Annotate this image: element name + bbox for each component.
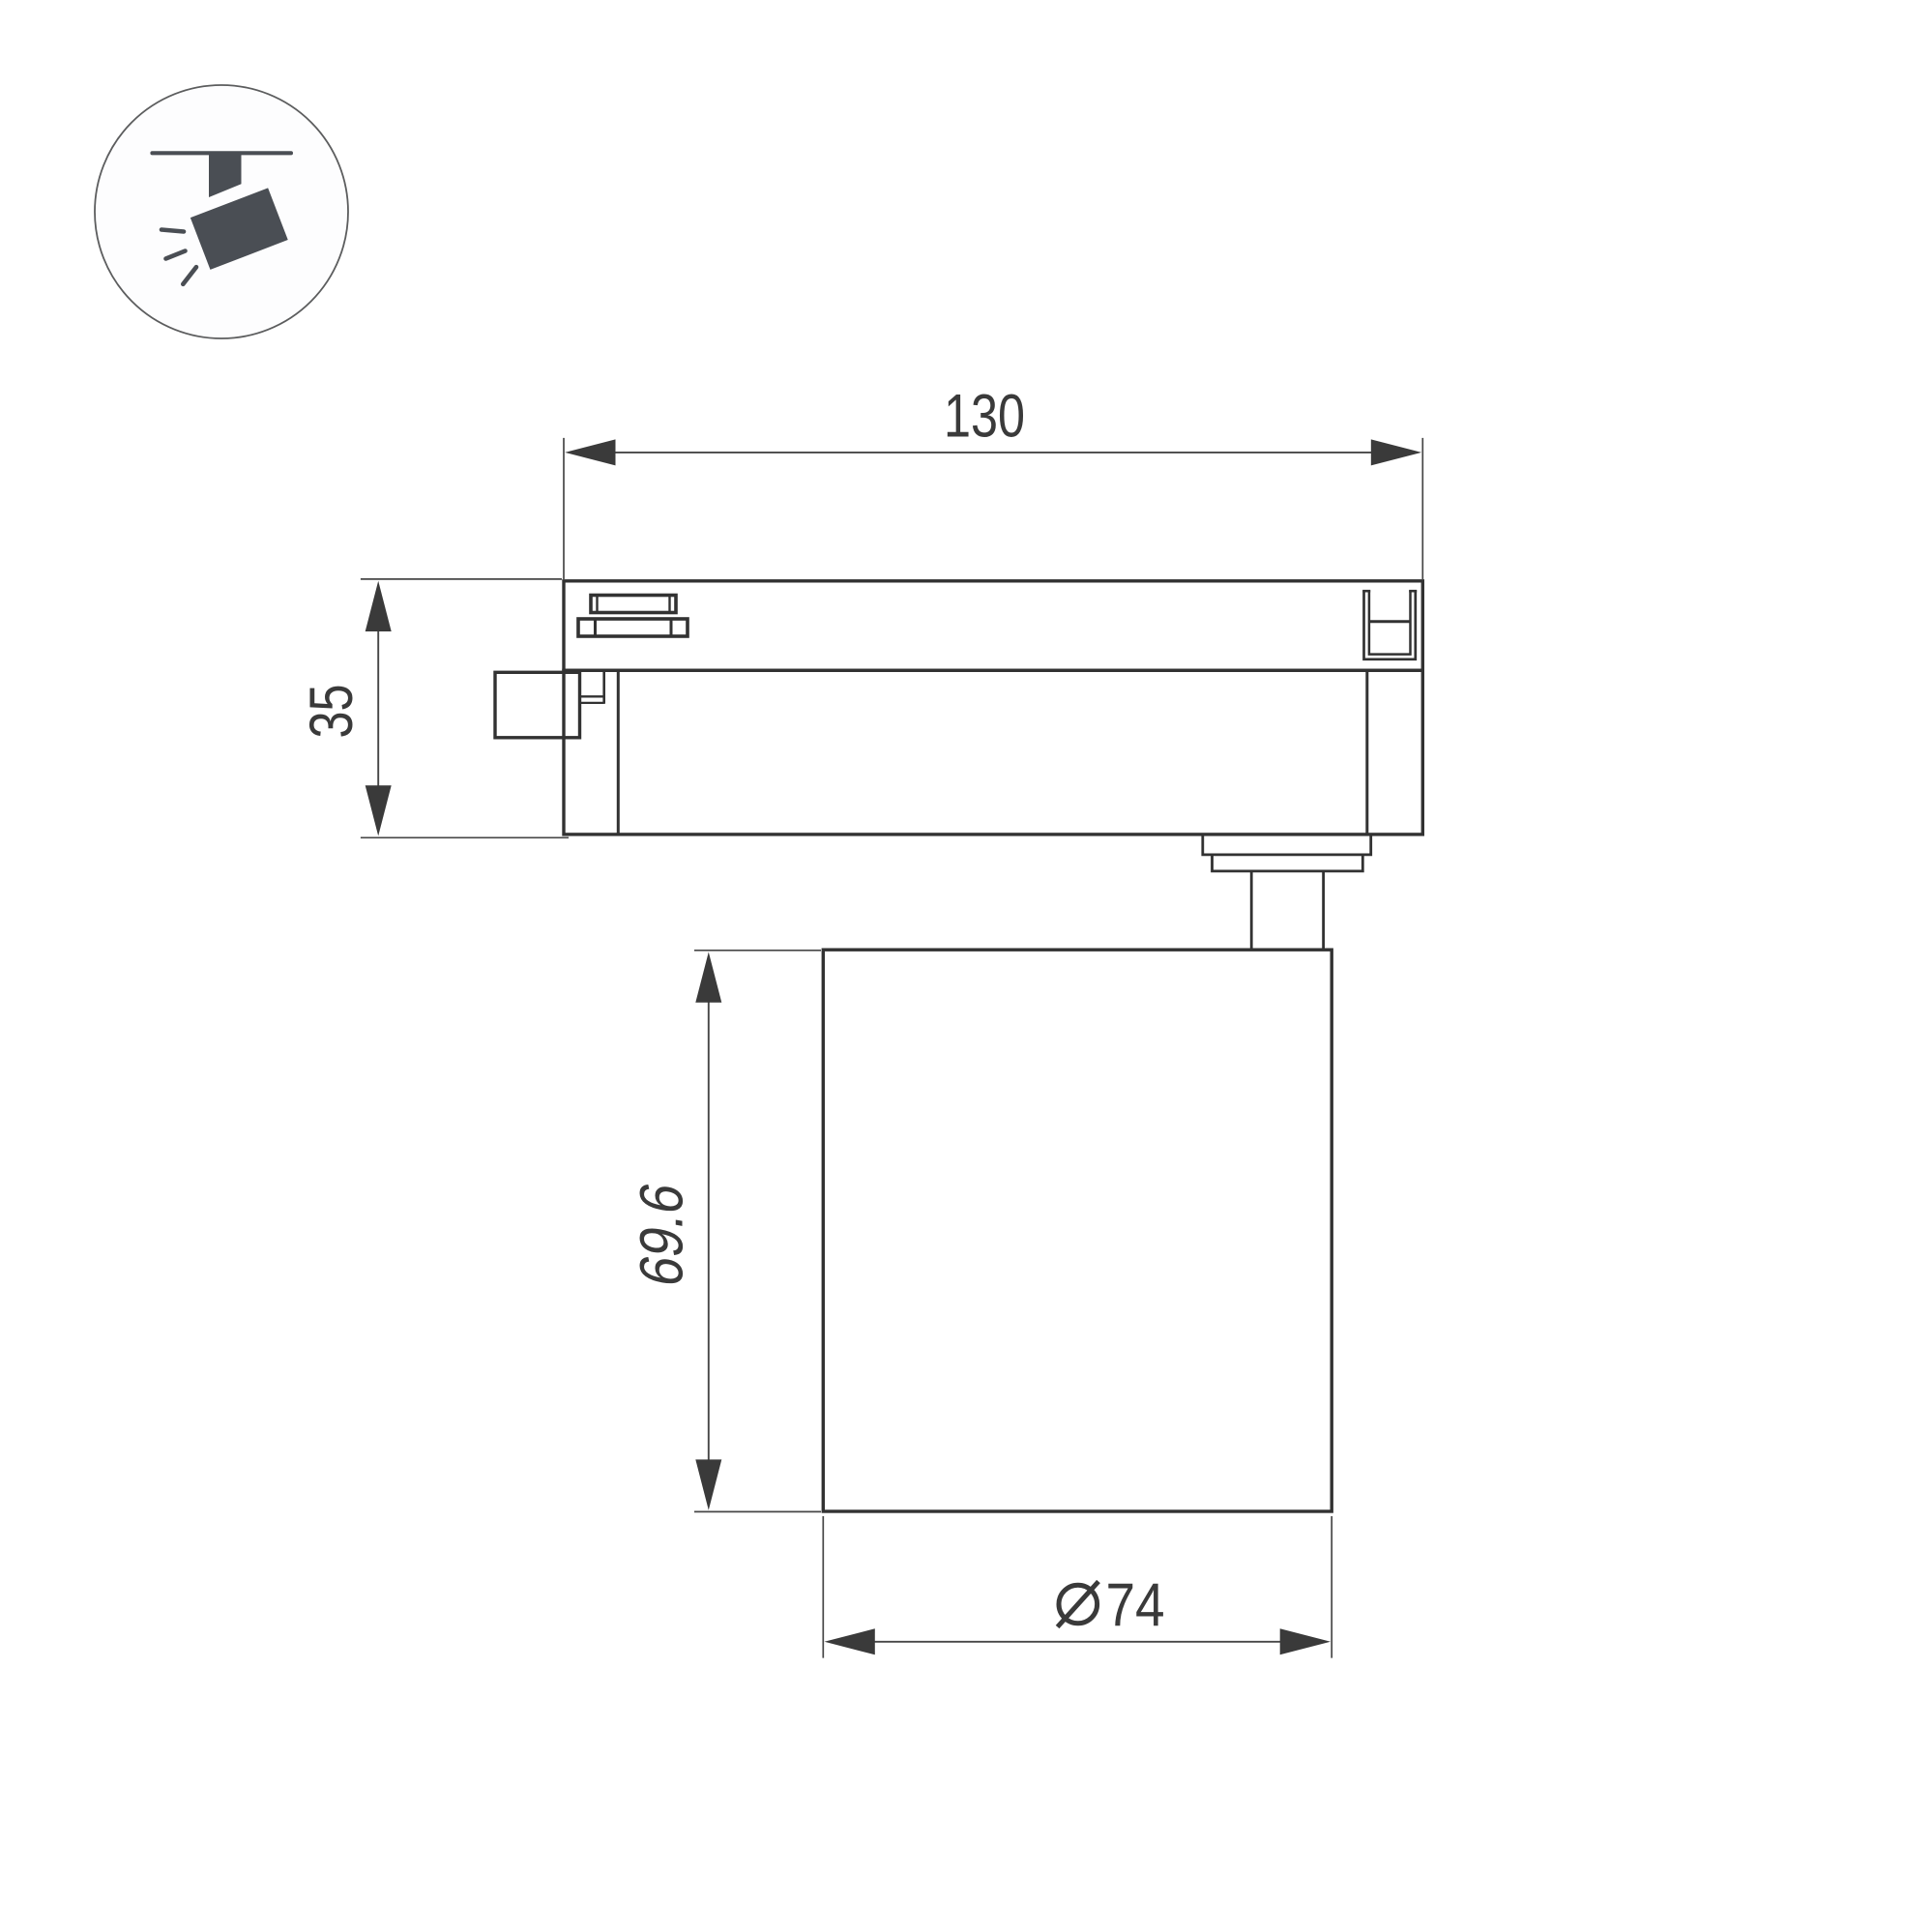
svg-text:69.6: 69.6	[629, 1178, 695, 1291]
svg-text:130: 130	[944, 383, 1025, 451]
svg-text:74: 74	[1106, 1572, 1165, 1640]
svg-text:35: 35	[298, 685, 366, 739]
